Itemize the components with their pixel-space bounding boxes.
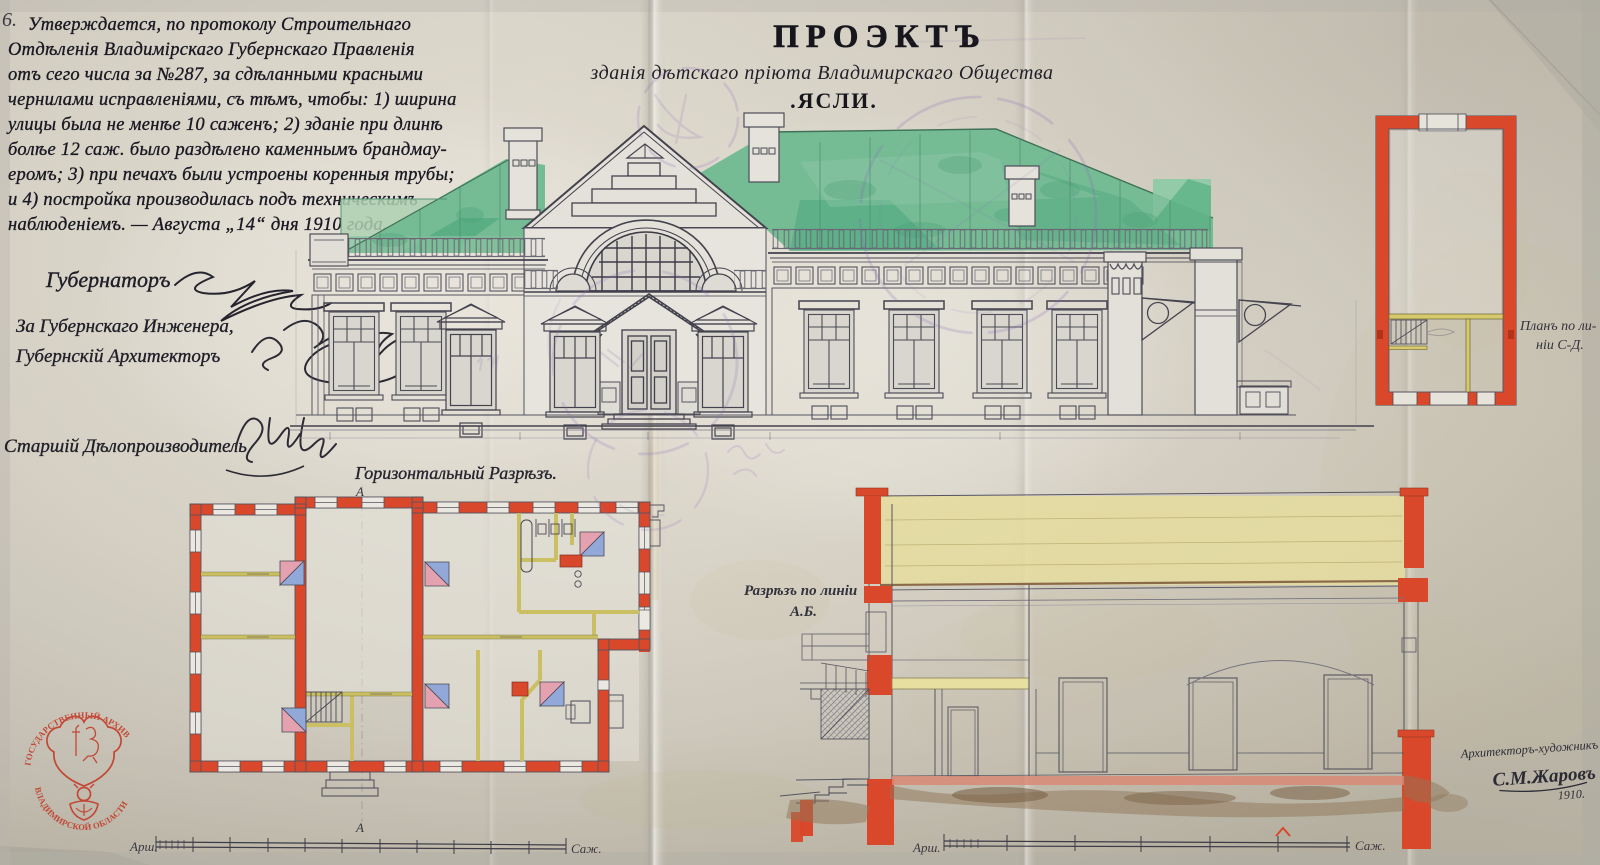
svg-text:1910.: 1910. — [1557, 787, 1585, 803]
svg-text:Губернскій Архитекторъ: Губернскій Архитекторъ — [15, 346, 220, 367]
svg-text:Старшій Дѣлопроизводитель: Старшій Дѣлопроизводитель — [4, 436, 247, 457]
svg-text:Арш.: Арш. — [912, 840, 941, 855]
svg-text:улицы была не менѣе 10 саженъ;: улицы была не менѣе 10 саженъ; 2) зданіе… — [6, 115, 443, 135]
svg-text:Губернаторъ: Губернаторъ — [45, 267, 170, 292]
svg-text:Арш.: Арш. — [129, 839, 158, 854]
svg-text:Утверждается, по протоколу Стр: Утверждается, по протоколу Строительнаго — [28, 15, 411, 35]
svg-text:Отдѣленія Владимірскаго Губе: Отдѣленія Владимірскаго Губернскаго Прав… — [8, 40, 415, 60]
svg-text:ПРОЭКТЪ: ПРОЭКТЪ — [773, 19, 987, 55]
svg-text:ніи С-Д.: ніи С-Д. — [1536, 338, 1584, 353]
svg-text:Планъ по ли-: Планъ по ли- — [1519, 319, 1597, 334]
svg-text:зданія дѣтскаго пріюта Влад: зданія дѣтскаго пріюта Владимирскаго Общ… — [590, 62, 1054, 84]
svg-text:отъ сего числа за №287, за сдѣ: отъ сего числа за №287, за сдѣланными кр… — [8, 65, 423, 85]
svg-text:Саж.: Саж. — [1355, 838, 1386, 853]
svg-text:За Губернскаго Инженера,: За Губернскаго Инженера, — [16, 316, 234, 337]
svg-text:6.: 6. — [2, 9, 17, 31]
svg-text:Разрѣзъ по линіи: Разрѣзъ по линіи — [744, 583, 857, 599]
svg-text:А: А — [355, 820, 364, 835]
svg-text:чернилами исправленіями, съ тѣ: чернилами исправленіями, съ тѣмъ, чтобы:… — [8, 90, 457, 110]
svg-text:Горизонтальный Разрѣзъ.: Горизонтальный Разрѣзъ. — [354, 463, 557, 483]
svg-text:еромъ; 3) при печахъ были уст: еромъ; 3) при печахъ были устроены корен… — [8, 165, 455, 185]
svg-text:.ЯСЛИ.: .ЯСЛИ. — [790, 88, 878, 113]
svg-text:болѣе 12 саж. было раздѣлено к: болѣе 12 саж. было раздѣлено каменнымъ б… — [8, 140, 447, 160]
svg-text:Саж.: Саж. — [571, 841, 602, 856]
svg-text:А.Б.: А.Б. — [789, 604, 817, 620]
